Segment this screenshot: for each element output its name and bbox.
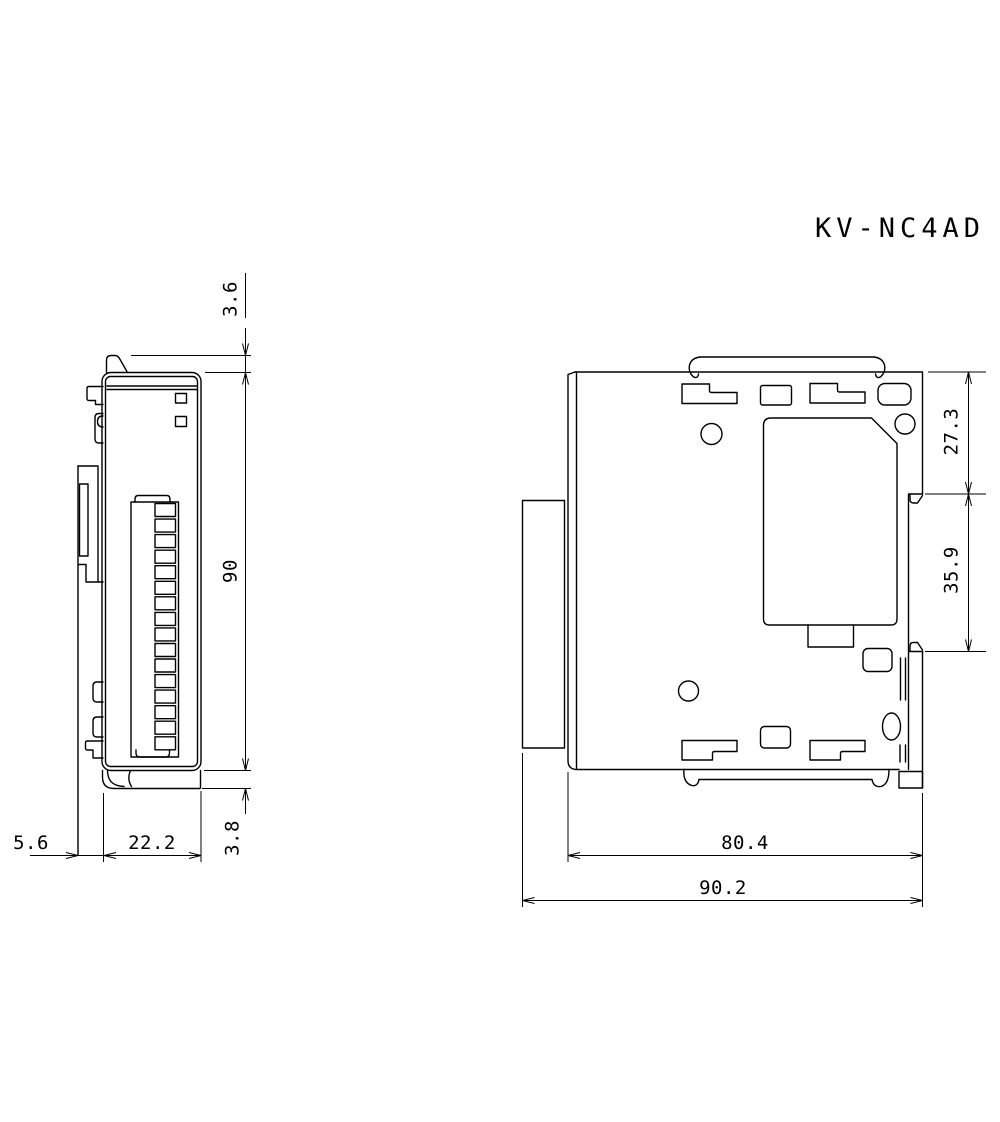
top-hook-left: [689, 357, 700, 378]
mounting-hole: [701, 424, 722, 445]
vent-slot: [863, 649, 892, 672]
terminal-cap-bottom: [136, 750, 170, 757]
dim-inner-depth: 80.4: [721, 832, 769, 854]
vent-slot: [682, 741, 737, 761]
mounting-hole: [679, 681, 699, 701]
terminal-cells: [155, 504, 176, 750]
side-view: [523, 357, 923, 788]
dim-body-width: 22.2: [128, 832, 176, 854]
top-hook-right: [874, 357, 885, 378]
dim-body-height: 90: [220, 559, 242, 583]
side-hook-lower: [86, 741, 104, 758]
expansion-connector: [523, 501, 565, 749]
din-release-tab: [899, 772, 923, 789]
side-hook-upper: [87, 387, 103, 405]
side-body-left-bottom: [568, 372, 899, 770]
vent-slot: [810, 384, 865, 404]
mounting-hole: [895, 414, 915, 434]
bottom-hook-left: [684, 770, 699, 786]
terminal-cap-top: [135, 496, 170, 503]
vent-slot: [878, 384, 911, 406]
vent-slot: [761, 386, 792, 406]
led-indicator: [176, 394, 187, 404]
dim-bottom-tab: 3.8: [222, 820, 244, 856]
bottom-hook-right: [872, 770, 889, 787]
drawing-canvas: KV-NC4AD: [0, 0, 1000, 1122]
dim-top-tab: 3.6: [220, 281, 242, 317]
dimension-drawing: KV-NC4AD: [0, 0, 1000, 1122]
side-body-top-right: [575, 372, 923, 494]
dim-overall-depth: 90.2: [699, 877, 747, 899]
din-clamp-knob: [883, 713, 901, 740]
vent-slot: [682, 384, 737, 404]
din-notch-lower: [910, 643, 923, 652]
dim-rail-section: 35.9: [941, 546, 963, 594]
din-clamp-spring: [900, 658, 906, 762]
front-body-inner: [106, 377, 198, 767]
dim-rail-offset: 5.6: [13, 832, 49, 854]
led-indicator: [176, 417, 187, 427]
side-view-dimensions: 27.3 35.9 80.4 90.2: [523, 372, 987, 907]
din-latch-front: [108, 771, 132, 787]
top-latch-tab: [107, 356, 128, 373]
rail-slot: [80, 484, 89, 556]
vent-slot: [761, 727, 791, 749]
din-notch-upper: [910, 494, 923, 503]
page-title: KV-NC4AD: [815, 213, 985, 244]
dim-upper-section: 27.3: [941, 408, 963, 456]
vent-slot: [810, 741, 865, 761]
front-view: [78, 356, 201, 856]
front-view-dimensions: 3.6 90 3.8 5.6 22.2: [13, 273, 251, 862]
label-panel: [764, 418, 898, 625]
front-body-outline: [102, 373, 201, 771]
panel-tab: [808, 625, 854, 647]
front-top-groove: [107, 386, 198, 390]
